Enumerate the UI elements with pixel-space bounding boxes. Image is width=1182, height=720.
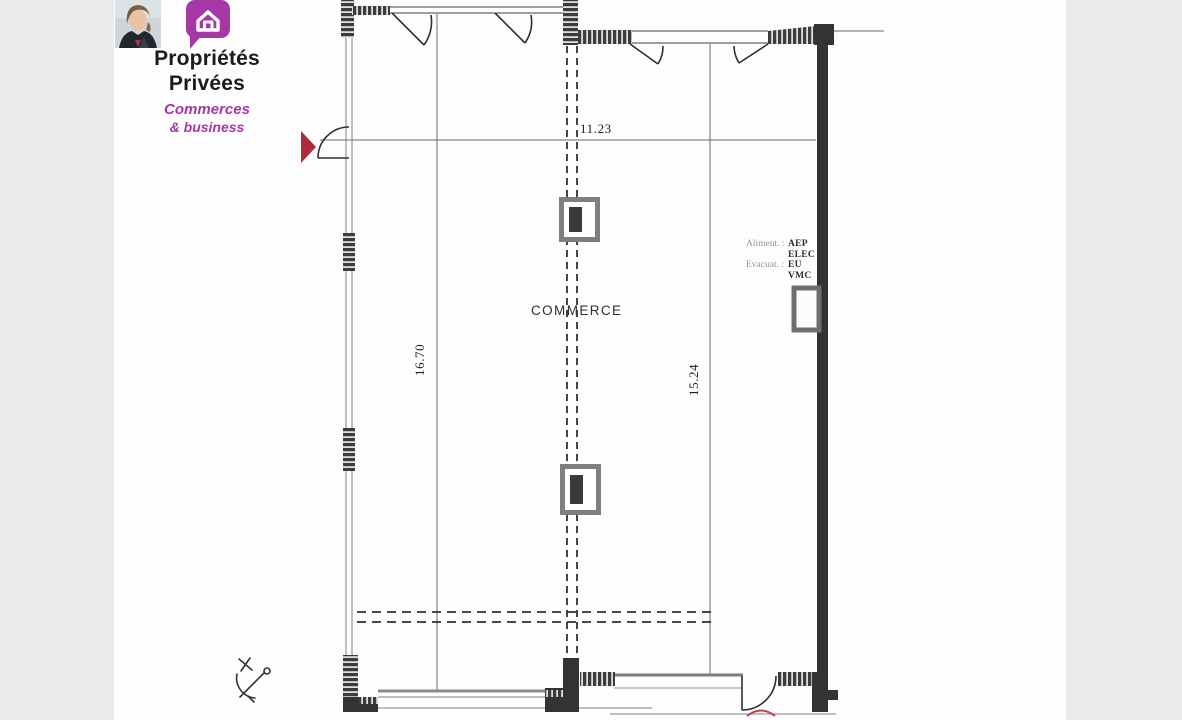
dashed-beam-lines <box>357 46 712 656</box>
door-swings <box>318 13 776 710</box>
floorplan-page: Propriétés Privées Commerces & business <box>0 0 1182 720</box>
dimension-top-width: 11.23 <box>580 121 612 137</box>
dimension-left-height: 16.70 <box>412 344 428 376</box>
north-compass-icon <box>237 658 270 702</box>
utility-row: Aliment. : AEP <box>746 239 815 250</box>
dimension-right-height: 15.24 <box>686 364 702 396</box>
utility-duct-box <box>794 288 819 330</box>
utility-row: Evacuat. : EU <box>746 260 815 271</box>
utilities-annotation: Aliment. : AEP ELEC Evacuat. : EU VMC <box>746 239 815 281</box>
floorplan-drawing <box>0 0 1182 720</box>
room-label: COMMERCE <box>531 303 622 318</box>
dimension-lines <box>320 14 816 691</box>
red-annotation-mark <box>747 711 775 717</box>
structural-columns <box>562 200 599 513</box>
utility-row: VMC <box>746 271 815 282</box>
utility-row: ELEC <box>746 250 815 261</box>
entrance-arrow-icon <box>301 131 316 163</box>
